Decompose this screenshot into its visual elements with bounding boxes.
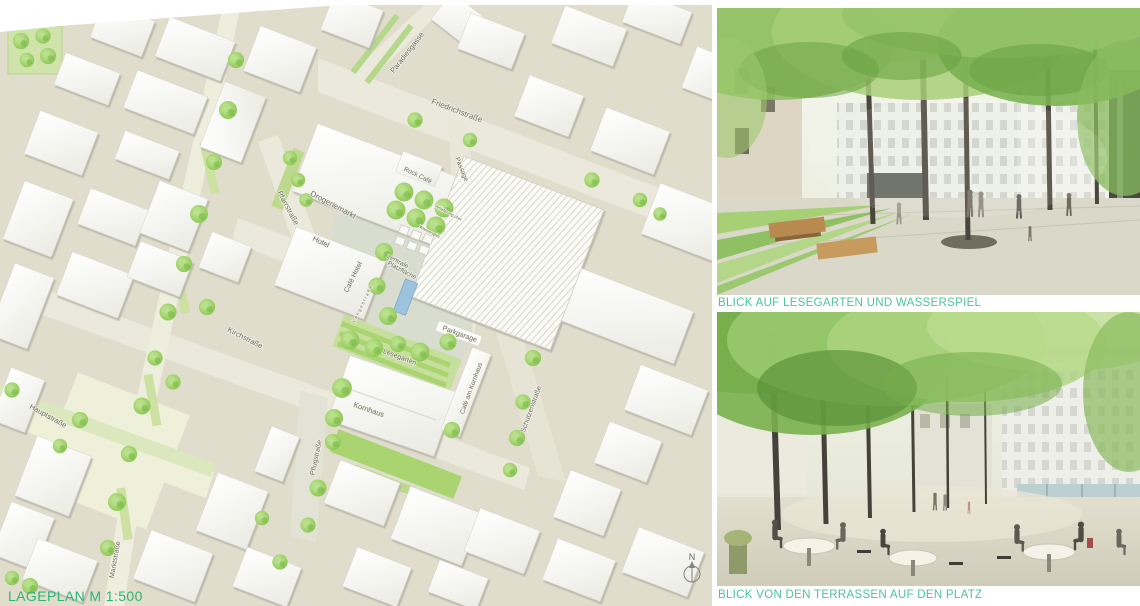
render-caption-terrassen: BLICK VON DEN TERRASSEN AUF DEN PLATZ (718, 587, 1140, 604)
north-label: N (689, 552, 696, 562)
render-view-terrassen (717, 312, 1140, 586)
siteplan-caption: LAGEPLAN M 1:500 (8, 588, 143, 604)
render-caption-lesegarten: BLICK AUF LESEGARTEN UND WASSERSPIEL (718, 295, 1140, 311)
presentation-board: ParadiesgasseFriedrichstraßePfarrstraßeD… (0, 0, 1140, 606)
renders-column: BLICK AUF LESEGARTEN UND WASSERSPIEL (717, 0, 1140, 606)
siteplan-panel: ParadiesgasseFriedrichstraßePfarrstraßeD… (0, 0, 712, 606)
red-vase (1087, 538, 1093, 548)
siteplan-drawing: ParadiesgasseFriedrichstraßePfarrstraßeD… (0, 0, 712, 606)
pocket-park (8, 26, 62, 74)
render-view-lesegarten (717, 8, 1140, 295)
